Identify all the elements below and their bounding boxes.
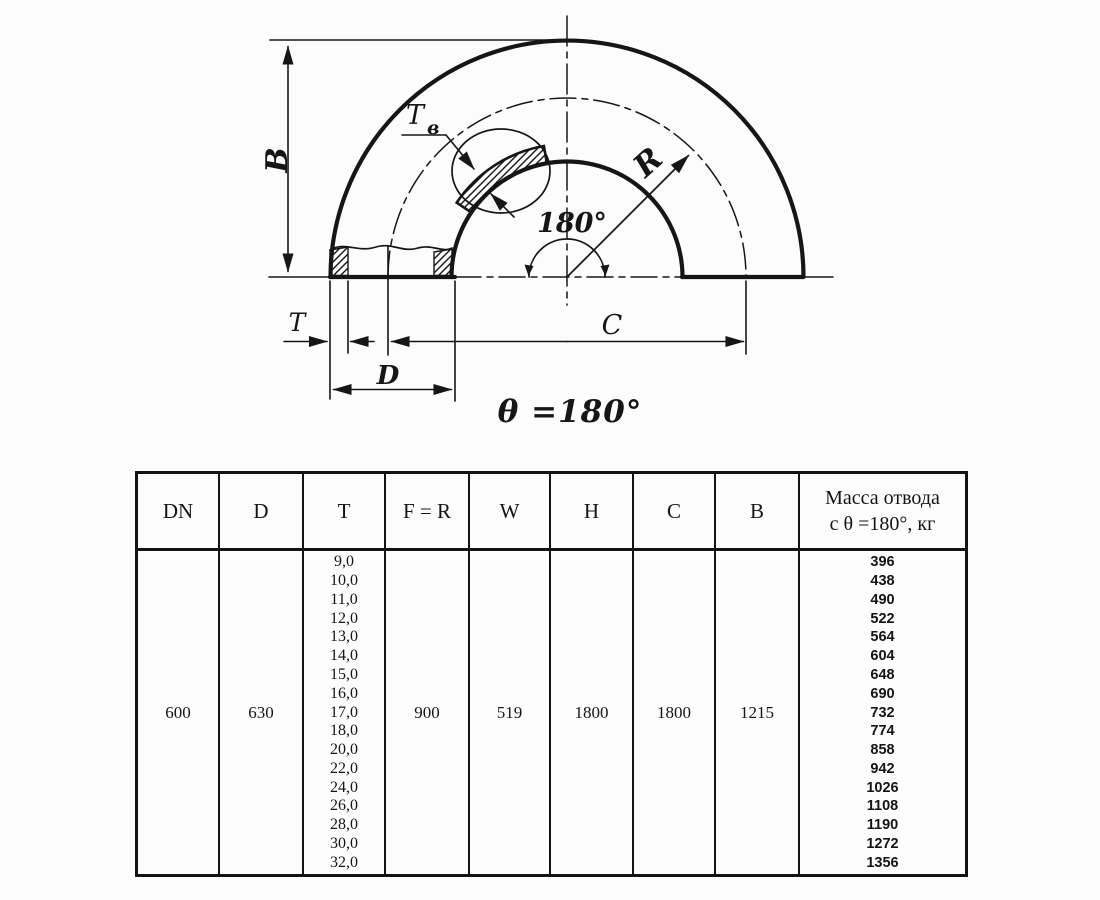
dim-label-tb-sub: в — [427, 117, 439, 139]
table-value: 9,0 — [304, 553, 384, 572]
table-value: 32,0 — [304, 853, 384, 872]
dim-label-r: R — [626, 141, 670, 186]
col-header-b: B — [716, 474, 800, 551]
dim-label-c: C — [602, 310, 623, 341]
return-bend-drawing: B T в R 180° T C D θ =180° — [0, 0, 1100, 462]
dim-label-t: T — [289, 308, 308, 337]
pipe-wall-section-inner — [434, 249, 452, 275]
dim-label-d: D — [376, 361, 400, 391]
table-value: 18,0 — [304, 722, 384, 741]
table-value: 13,0 — [304, 628, 384, 647]
angle-label: 180° — [537, 208, 607, 239]
table-value: 774 — [800, 722, 965, 741]
angle-arc-arrow-left — [525, 265, 534, 277]
col-header-fr: F = R — [386, 474, 470, 551]
col-header-mass: Масса отвода с θ =180°, кг — [800, 474, 965, 551]
table-value: 522 — [800, 609, 965, 628]
table-value: 690 — [800, 684, 965, 703]
col-header-h: H — [551, 474, 634, 551]
col-header-t: T — [304, 474, 386, 551]
table-value: 30,0 — [304, 834, 384, 853]
value-b: 1215 — [716, 551, 800, 874]
col-header-w: W — [470, 474, 551, 551]
table-value: 24,0 — [304, 778, 384, 797]
table-value: 396 — [800, 553, 965, 572]
value-fr: 900 — [386, 551, 470, 874]
table-value: 1190 — [800, 816, 965, 835]
value-h: 1800 — [551, 551, 634, 874]
col-header-d: D — [220, 474, 304, 551]
table-value: 1108 — [800, 797, 965, 816]
table-value: 1026 — [800, 778, 965, 797]
theta-equation-label: θ =180° — [498, 394, 643, 430]
table-value: 26,0 — [304, 797, 384, 816]
table-value: 438 — [800, 572, 965, 591]
table-value: 1356 — [800, 853, 965, 872]
table-value: 604 — [800, 647, 965, 666]
col-header-mass-line1: Масса отвода — [825, 485, 940, 511]
table-value: 1272 — [800, 834, 965, 853]
table-value: 648 — [800, 666, 965, 685]
table-value: 490 — [800, 591, 965, 610]
table-value: 22,0 — [304, 759, 384, 778]
table-value: 942 — [800, 759, 965, 778]
dimensions-table: DN D T F = R W H C B Масса отвода с θ =1… — [135, 471, 968, 877]
pipe-wall-section-outer — [330, 247, 348, 275]
tb-leader-arrow — [446, 135, 474, 169]
angle-arc-arrow-right — [601, 265, 610, 277]
table-value: 28,0 — [304, 816, 384, 835]
table-value: 17,0 — [304, 703, 384, 722]
table-value: 20,0 — [304, 741, 384, 760]
table-value: 12,0 — [304, 609, 384, 628]
engineering-drawing-sheet: B T в R 180° T C D θ =180° DN D T F = R … — [0, 0, 1100, 900]
col-header-mass-line2: с θ =180°, кг — [830, 511, 936, 537]
value-mass-list: 3964384905225646046486907327748589421026… — [800, 551, 965, 874]
value-dn: 600 — [138, 551, 220, 874]
table-value: 14,0 — [304, 647, 384, 666]
table-value: 858 — [800, 741, 965, 760]
dim-label-b: B — [260, 147, 295, 173]
table-value: 732 — [800, 703, 965, 722]
value-w: 519 — [470, 551, 551, 874]
table-value: 10,0 — [304, 572, 384, 591]
table-value: 564 — [800, 628, 965, 647]
col-header-dn: DN — [138, 474, 220, 551]
dim-label-tb-main: T — [406, 100, 426, 131]
col-header-c: C — [634, 474, 716, 551]
table-value: 15,0 — [304, 666, 384, 685]
table-value: 16,0 — [304, 684, 384, 703]
value-t-list: 9,010,011,012,013,014,015,016,017,018,02… — [304, 551, 386, 874]
value-c: 1800 — [634, 551, 716, 874]
table-value: 11,0 — [304, 591, 384, 610]
value-d: 630 — [220, 551, 304, 874]
